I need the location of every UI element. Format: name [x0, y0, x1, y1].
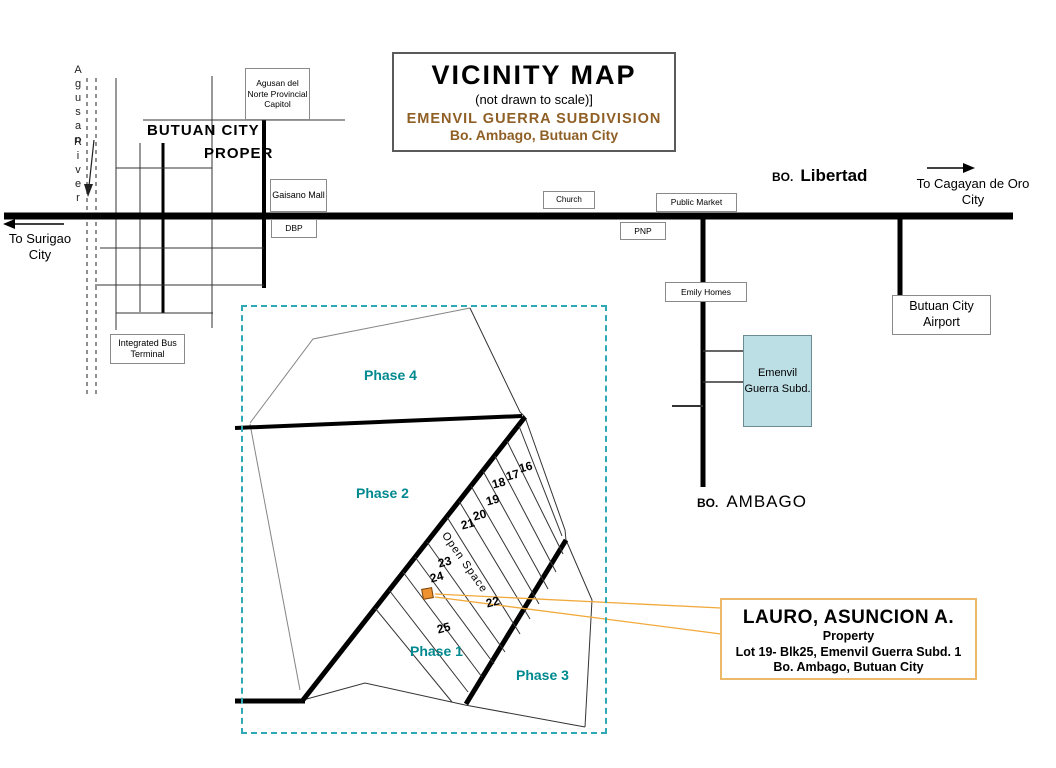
river-lines — [87, 78, 96, 395]
bo-libertad-label: BO. Libertad — [772, 166, 867, 186]
phase4-label: Phase 4 — [364, 367, 417, 383]
property-type: Property — [722, 629, 975, 645]
map-subtitle: (not drawn to scale)] — [394, 92, 674, 107]
phase3-label: Phase 3 — [516, 667, 569, 683]
river-flow-arrow — [84, 140, 94, 197]
subdivision-name: EMENVIL GUERRA SUBDIVISION — [394, 111, 674, 127]
owner-name: LAURO, ASUNCION A. — [722, 607, 975, 629]
to-surigao-line1: To Surigao — [9, 231, 71, 246]
property-callout-box: LAURO, ASUNCION A. Property Lot 19- Blk2… — [720, 598, 977, 680]
access-ticks — [672, 351, 743, 406]
river-label-river: River — [72, 136, 84, 206]
proper-label: PROPER — [204, 145, 273, 162]
map-title: VICINITY MAP — [394, 60, 674, 91]
property-location: Bo. Ambago, Butuan City — [722, 660, 975, 676]
airport-box: Butuan City Airport — [892, 295, 991, 335]
title-box: VICINITY MAP (not drawn to scale)] EMENV… — [392, 52, 676, 152]
lot-description: Lot 19- Blk25, Emenvil Guerra Subd. 1 — [722, 645, 975, 661]
arrow-to-cagayan — [927, 163, 975, 173]
libertad-name: Libertad — [800, 166, 867, 186]
ambago-name: AMBAGO — [726, 492, 807, 512]
capitol-box: Agusan del Norte Provincial Capitol — [245, 68, 310, 120]
property-lot-marker — [421, 587, 434, 600]
arrow-to-surigao — [3, 219, 64, 229]
bo-prefix: BO. — [772, 170, 793, 184]
dbp-box: DBP — [271, 219, 317, 238]
bo-prefix: BO. — [697, 496, 718, 510]
butuan-city-label: BUTUAN CITY — [147, 122, 260, 139]
to-cagayan-label: To Cagayan de Oro City — [908, 176, 1038, 207]
emenvil-subd-box: Emenvil Guerra Subd. — [743, 335, 812, 427]
gaisano-mall-box: Gaisano Mall — [270, 179, 327, 212]
phase1-label: Phase 1 — [410, 643, 463, 659]
bus-terminal-box: Integrated Bus Terminal — [110, 334, 185, 364]
to-cagayan-line2: City — [962, 192, 984, 207]
phase2-label: Phase 2 — [356, 485, 409, 501]
to-cagayan-line1: To Cagayan de Oro — [917, 176, 1030, 191]
bo-ambago-label: BO. AMBAGO — [697, 492, 807, 512]
to-surigao-label: To Surigao City — [0, 231, 80, 262]
church-box: Church — [543, 191, 595, 209]
subdivision-location: Bo. Ambago, Butuan City — [394, 127, 674, 143]
pnp-box: PNP — [620, 222, 666, 240]
to-surigao-line2: City — [29, 247, 51, 262]
public-market-box: Public Market — [656, 193, 737, 212]
vicinity-map: VICINITY MAP (not drawn to scale)] EMENV… — [0, 0, 1056, 768]
emily-homes-box: Emily Homes — [665, 282, 747, 302]
